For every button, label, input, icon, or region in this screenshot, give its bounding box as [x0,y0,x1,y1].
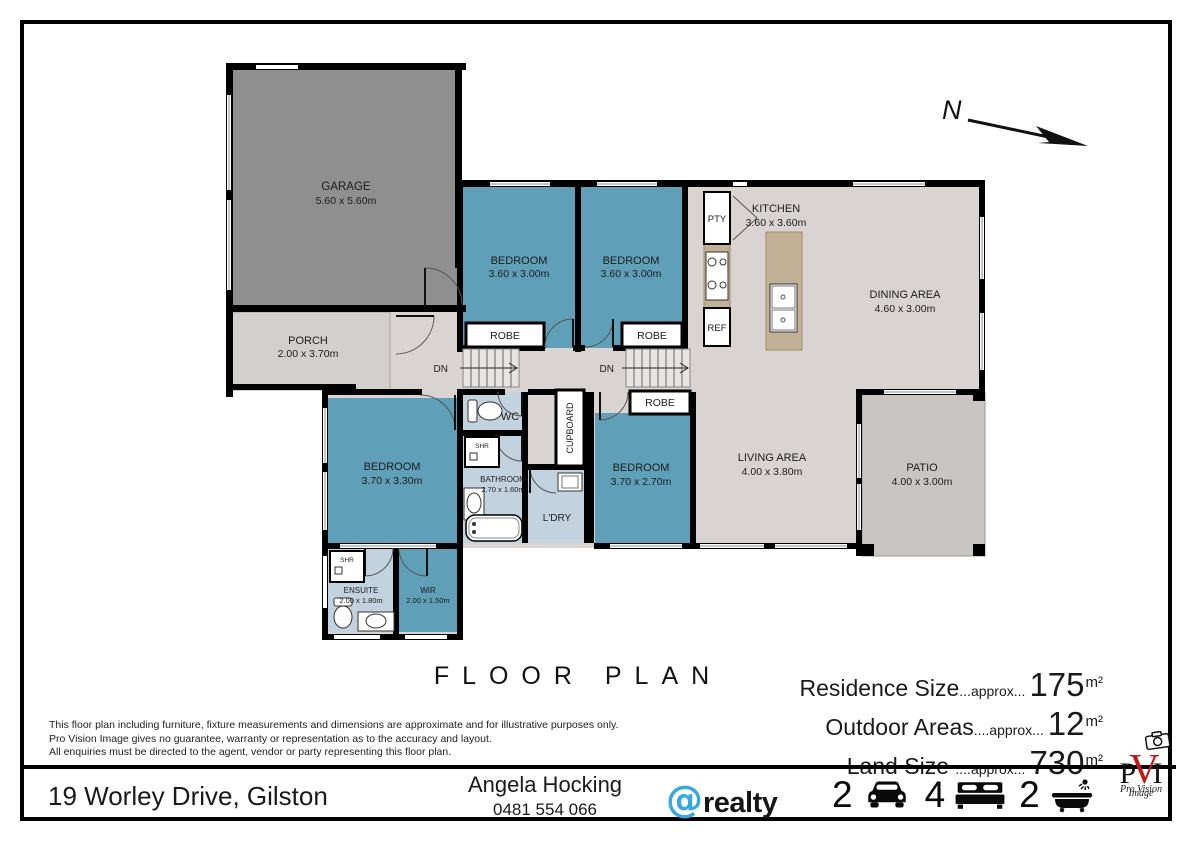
wir-label: WIR [420,586,436,595]
disclaimer-text: This floor plan including furniture, fix… [49,719,618,760]
ensuite-label: ENSUITE [344,586,379,595]
bed-icon [954,778,1006,812]
dining-label: DINING AREA [870,289,942,301]
wc-toilet-bowl [478,402,502,420]
pvi-text-line2: Image [1098,789,1184,799]
patio-label: PATIO [906,462,938,474]
bathrooms-stat: 2 [1019,774,1095,816]
outdoor-areas-unit: m² [1086,713,1104,730]
footer-divider [24,765,1176,769]
laundry-label: L'DRY [543,513,572,524]
bathtub [466,515,522,541]
agent-block: Angela Hocking 0481 554 066 [420,772,670,820]
fridge-label: REF [708,323,727,334]
robe2-label: ROBE [637,330,667,342]
camera-icon [1144,729,1172,750]
bedroom3-dims: 3.70 x 2.70m [611,476,672,488]
staircase-right [622,349,690,387]
master-label: BEDROOM [364,461,421,473]
porch-label: PORCH [288,335,328,347]
patio-dims: 4.00 x 3.00m [892,476,953,488]
wc-label: WC [501,411,519,423]
bedrooms-count: 4 [925,774,946,816]
living-label: LIVING AREA [738,452,807,464]
pro-vision-image-logo: PVI Pro Vision Image [1098,731,1184,799]
shower-label-bathroom: SHR [475,443,489,450]
outdoor-areas-label: Outdoor Areas [825,714,973,741]
residence-size-label: Residence Size [799,675,959,702]
shower-box-bathroom [465,437,499,467]
realty-logo: @realty [666,778,777,821]
outdoor-areas-dots: ....approx... [974,722,1044,738]
garage-dims: 5.60 x 5.60m [316,195,377,207]
bedrooms-stat: 4 [925,774,1007,816]
cupboard-label: CUPBOARD [565,402,575,454]
dn-label-right: DN [600,364,614,375]
property-stats: 2 4 2 [832,774,1095,816]
realty-name: realty [703,787,777,820]
bedroom2-dims: 3.60 x 3.00m [601,268,662,280]
ensuite-dims: 2.00 x 1.80m [339,596,382,605]
dining-dims: 4.60 x 3.00m [875,303,936,315]
floor-plan-drawing: GARAGE 5.60 x 5.60m PORCH 2.00 x 3.70m B… [0,0,1200,660]
residence-size-row: Residence Size ...approx... 175 m² [799,666,1103,704]
residence-size-value: 175 [1029,666,1084,704]
north-arrow: N [942,95,1088,146]
floor-plan-page: GARAGE 5.60 x 5.60m PORCH 2.00 x 3.70m B… [0,0,1200,849]
residence-size-unit: m² [1086,674,1104,691]
bathrooms-count: 2 [1019,774,1040,816]
shower-label-ensuite: SHR [340,557,354,564]
bathroom-label: BATHROOM [480,475,526,484]
kitchen-label: KITCHEN [752,203,800,215]
realty-at-icon: @ [666,778,703,821]
robe1-label: ROBE [490,330,520,342]
agent-phone: 0481 554 066 [420,800,670,820]
garage-label: GARAGE [321,181,371,193]
disclaimer-line-2: Pro Vision Image gives no guarantee, war… [49,733,618,747]
agent-name: Angela Hocking [420,772,670,798]
kitchen-dims: 3.60 x 3.60m [746,217,807,229]
dn-label-left: DN [434,364,448,375]
outdoor-areas-value: 12 [1048,705,1085,743]
wir-dims: 2.00 x 1.50m [406,596,449,605]
residence-size-dots: ...approx... [959,683,1025,699]
bedroom3-label: BEDROOM [613,462,670,474]
disclaimer-line-3: All enquiries must be directed to the ag… [49,746,618,760]
bath-icon [1049,777,1095,813]
car-spaces-stat: 2 [832,774,912,816]
bathroom-dims: 2.70 x 1.60m [481,485,524,494]
living-dims: 4.00 x 3.80m [742,466,803,478]
patio-floor [862,392,985,556]
car-spaces-count: 2 [832,774,853,816]
robe3-label: ROBE [645,397,675,409]
porch-dims: 2.00 x 3.70m [278,348,339,360]
ensuite-toilet-bowl [334,606,352,628]
bedroom1-dims: 3.60 x 3.00m [489,268,550,280]
outdoor-areas-row: Outdoor Areas ....approx... 12 m² [825,705,1103,743]
bedroom2-label: BEDROOM [603,255,660,267]
master-dims: 3.70 x 3.30m [362,475,423,487]
disclaimer-line-1: This floor plan including furniture, fix… [49,719,618,733]
car-icon [862,778,912,812]
staircase-left [460,349,519,387]
property-address: 19 Worley Drive, Gilston [48,781,328,812]
north-label: N [942,95,962,125]
pantry-label: PTY [708,214,727,225]
bedroom1-label: BEDROOM [491,255,548,267]
wc-toilet-tank [468,400,477,422]
